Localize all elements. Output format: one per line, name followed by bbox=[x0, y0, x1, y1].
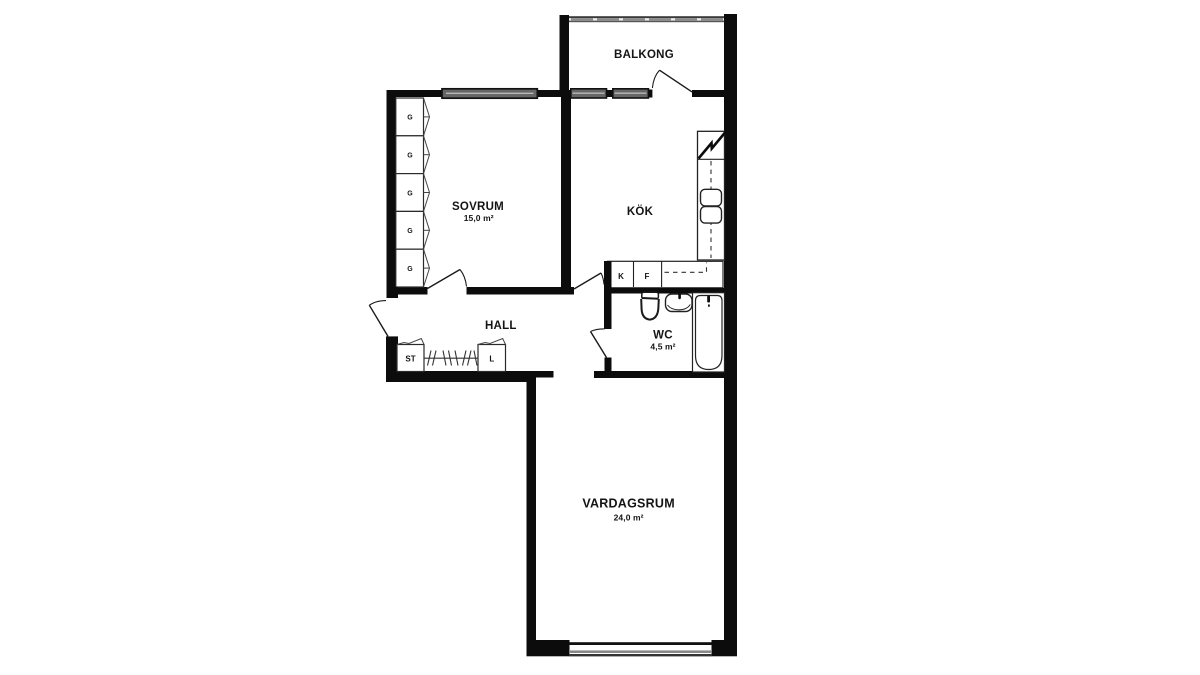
svg-text:KÖK: KÖK bbox=[627, 205, 654, 218]
svg-text:WC: WC bbox=[653, 330, 673, 342]
svg-text:G: G bbox=[407, 266, 413, 273]
svg-text:L: L bbox=[489, 355, 494, 364]
svg-text:VARDAGSRUM: VARDAGSRUM bbox=[582, 497, 675, 511]
svg-text:K: K bbox=[618, 272, 624, 281]
svg-text:4,5 m²: 4,5 m² bbox=[650, 342, 675, 352]
svg-text:ST: ST bbox=[405, 355, 415, 364]
svg-text:G: G bbox=[407, 228, 413, 235]
svg-text:G: G bbox=[407, 115, 413, 122]
svg-text:SOVRUM: SOVRUM bbox=[452, 201, 504, 213]
svg-text:BALKONG: BALKONG bbox=[614, 49, 674, 61]
svg-text:24,0 m²: 24,0 m² bbox=[614, 513, 644, 523]
svg-text:G: G bbox=[407, 190, 413, 197]
svg-text:F: F bbox=[645, 272, 650, 281]
svg-text:15,0 m²: 15,0 m² bbox=[464, 213, 494, 223]
svg-text:HALL: HALL bbox=[485, 320, 517, 332]
svg-text:G: G bbox=[407, 153, 413, 160]
